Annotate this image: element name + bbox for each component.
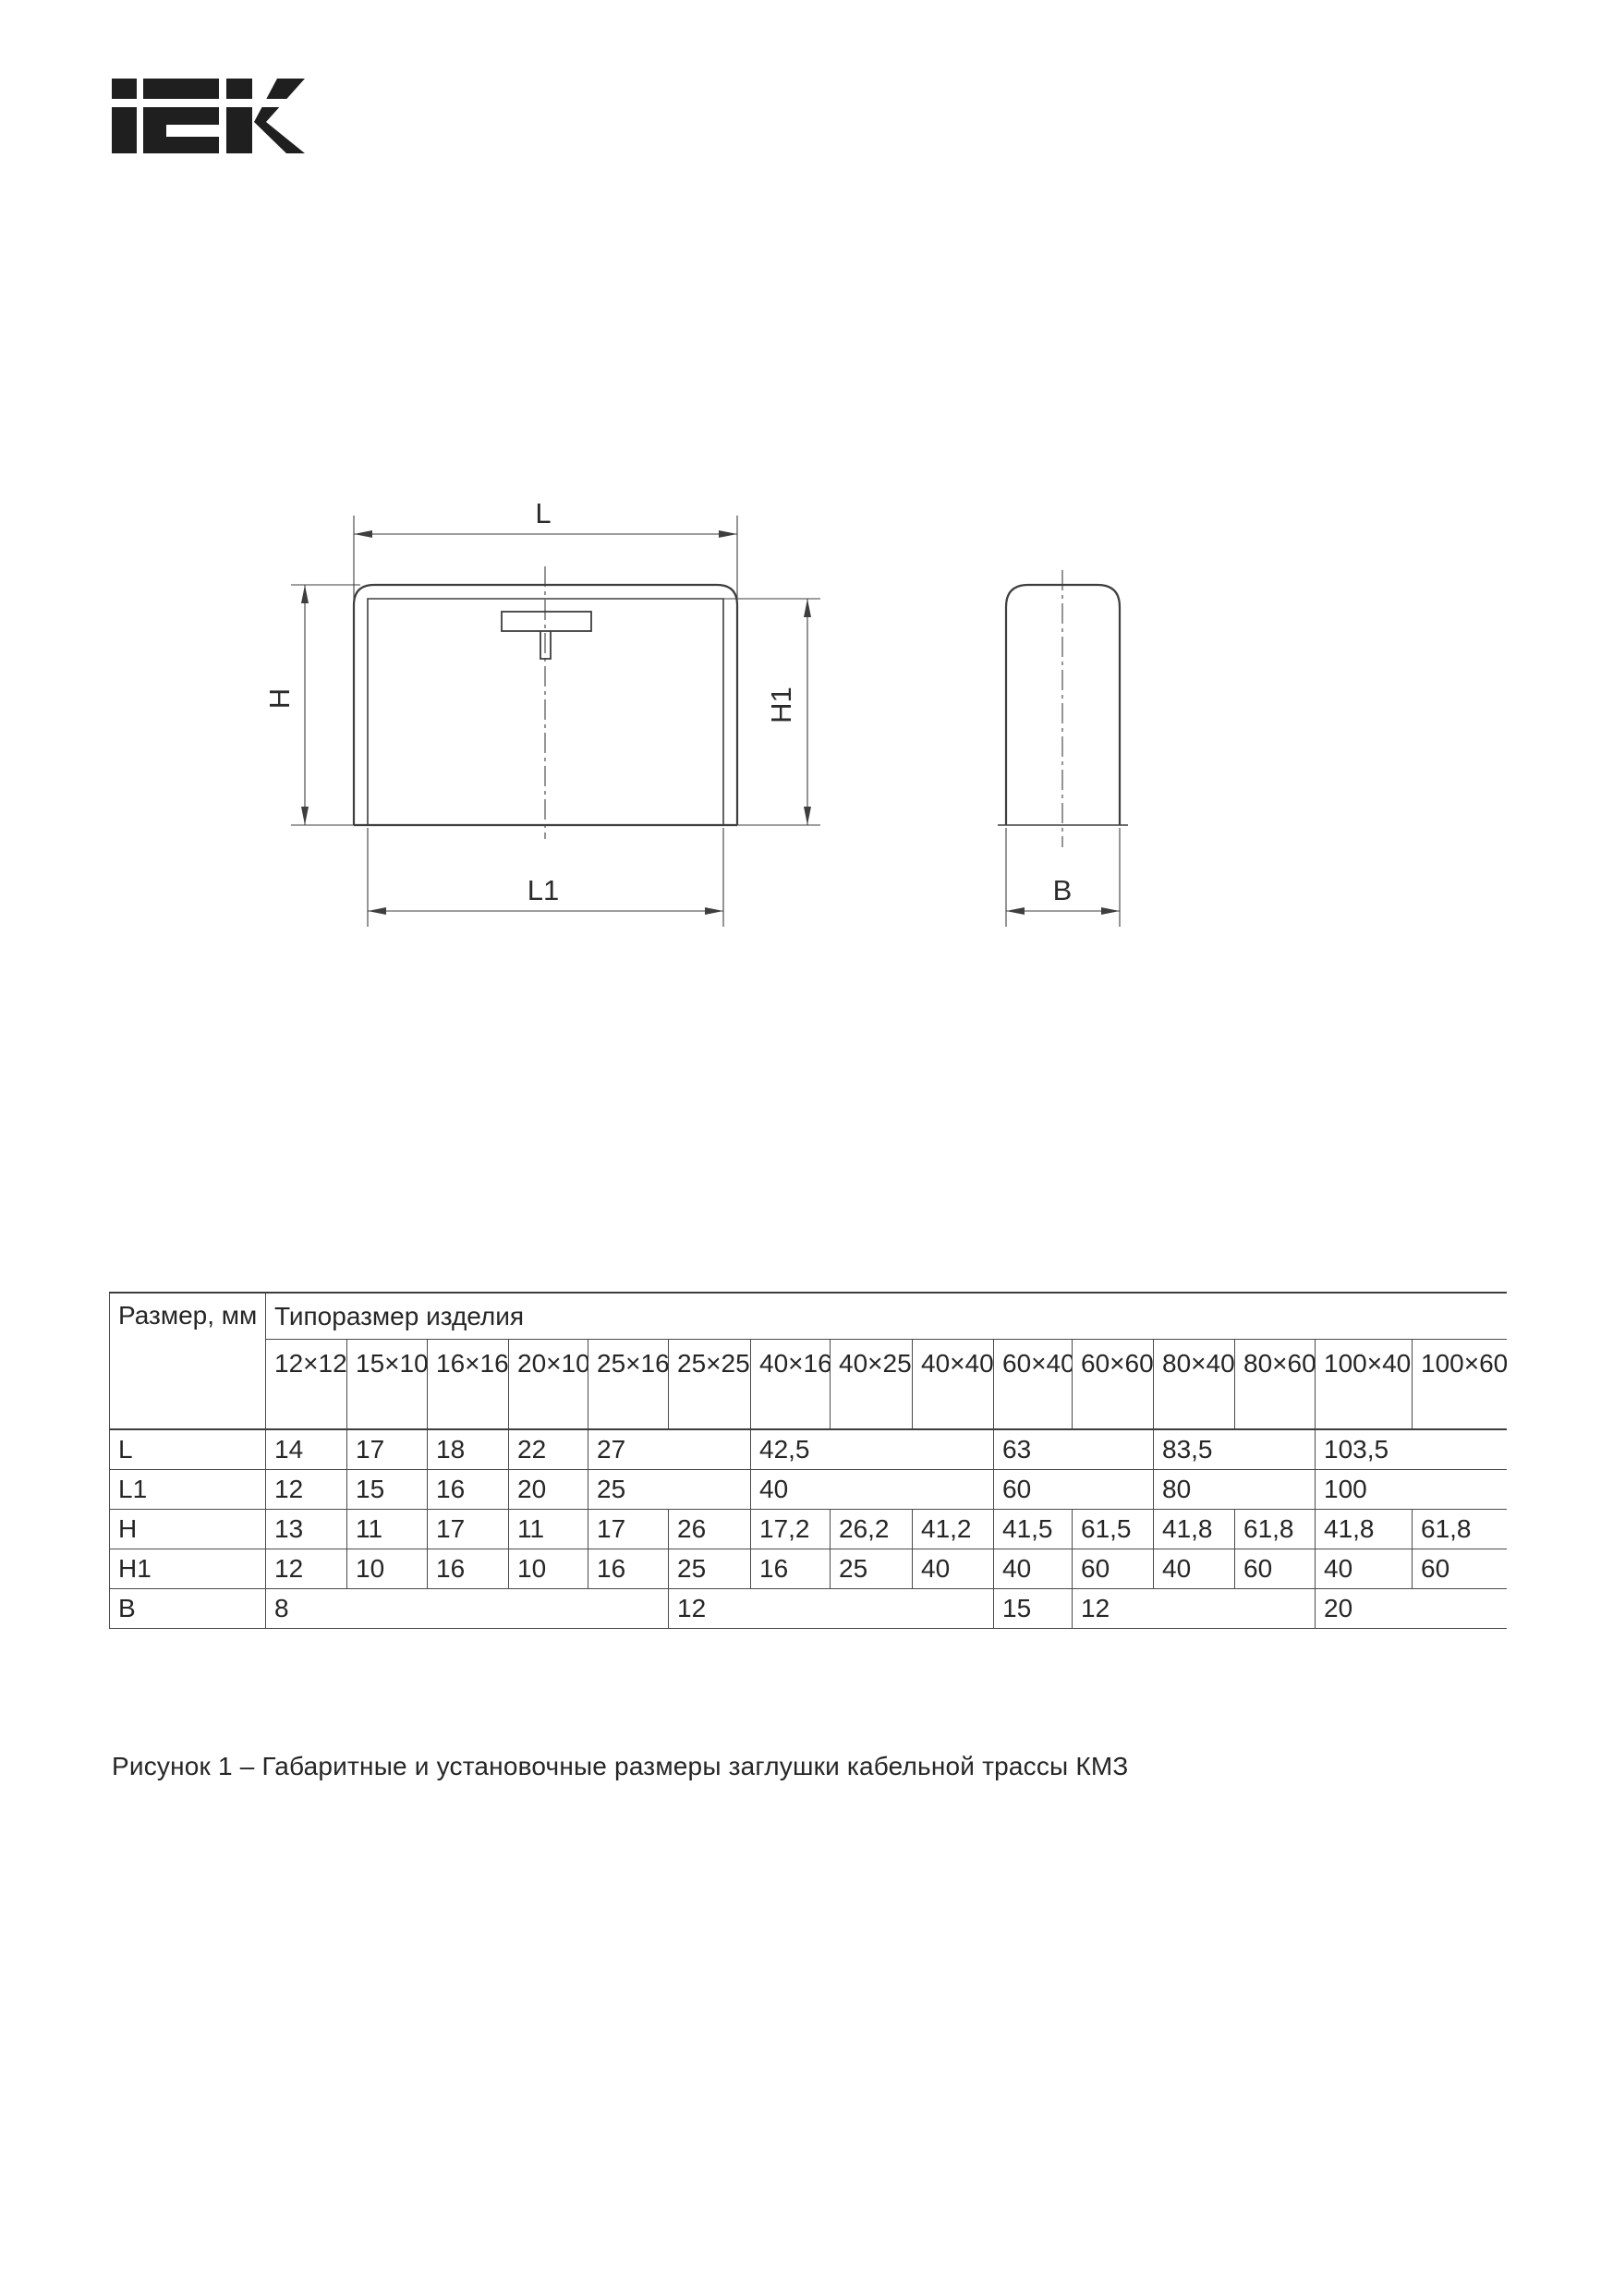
row-label-cell: L (110, 1429, 266, 1470)
size-header-cell: 20×10 (509, 1340, 588, 1430)
size-header-cell: 25×16 (588, 1340, 669, 1430)
dim-label-h1: H1 (765, 686, 797, 723)
corner-header-cell: Размер, мм (110, 1293, 266, 1429)
group-header-cell: Типоразмер изделия (266, 1293, 1507, 1340)
value-cell: 27 (588, 1429, 751, 1470)
value-cell: 25 (588, 1470, 751, 1510)
arrow-h-top (301, 585, 309, 603)
value-cell: 25 (669, 1549, 751, 1589)
table-row-b: B812151220 (110, 1589, 1507, 1629)
latch-bar (502, 612, 591, 631)
size-header-cell: 40×40 (913, 1340, 994, 1430)
value-cell: 26,2 (831, 1510, 913, 1549)
arrow-l-left (354, 530, 372, 538)
value-cell: 17 (347, 1429, 428, 1470)
value-cell: 13 (266, 1510, 347, 1549)
value-cell: 12 (1073, 1589, 1316, 1629)
size-header-cell: 12×12 (266, 1340, 347, 1430)
size-header-row: 12×1215×1016×1620×1025×1625×2540×1640×25… (110, 1340, 1507, 1430)
value-cell: 8 (266, 1589, 669, 1629)
dimensions-table-wrap: Размер, ммТипоразмер изделия12×1215×1016… (109, 1292, 1507, 1629)
row-label-cell: B (110, 1589, 266, 1629)
arrow-l1-left (368, 907, 386, 915)
dimension-labels: L L1 H H1 B (263, 497, 1072, 906)
size-header-cell: 25×25 (669, 1340, 751, 1430)
value-cell: 25 (831, 1549, 913, 1589)
value-cell: 60 (1413, 1549, 1507, 1589)
size-header-cell: 80×60 (1235, 1340, 1316, 1430)
value-cell: 26 (669, 1510, 751, 1549)
value-cell: 42,5 (751, 1429, 994, 1470)
value-cell: 16 (428, 1470, 509, 1510)
value-cell: 61,8 (1413, 1510, 1507, 1549)
dim-label-h: H (263, 688, 296, 709)
value-cell: 15 (994, 1589, 1073, 1629)
arrow-b-left (1006, 907, 1025, 915)
value-cell: 18 (428, 1429, 509, 1470)
value-cell: 63 (994, 1429, 1154, 1470)
size-header-cell: 80×40 (1154, 1340, 1235, 1430)
arrow-b-right (1101, 907, 1120, 915)
row-label-cell: H (110, 1510, 266, 1549)
document-page: IEK (0, 0, 1613, 2296)
arrow-h-bottom (301, 807, 309, 825)
dimensions-table: Размер, ммТипоразмер изделия12×1215×1016… (109, 1292, 1507, 1629)
value-cell: 40 (913, 1549, 994, 1589)
value-cell: 16 (428, 1549, 509, 1589)
value-cell: 83,5 (1154, 1429, 1316, 1470)
size-header-cell: 60×60 (1073, 1340, 1154, 1430)
size-header-cell: 60×40 (994, 1340, 1073, 1430)
size-header-cell: 100×60 (1413, 1340, 1507, 1430)
value-cell: 14 (266, 1429, 347, 1470)
arrow-l-right (719, 530, 737, 538)
size-header-cell: 100×40 (1316, 1340, 1413, 1430)
arrow-h1-top (804, 599, 811, 617)
dim-label-l1: L1 (528, 874, 559, 906)
dim-label-l: L (535, 497, 551, 529)
value-cell: 100 (1316, 1470, 1507, 1510)
value-cell: 15 (347, 1470, 428, 1510)
size-header-cell: 15×10 (347, 1340, 428, 1430)
table-header-row: Размер, ммТипоразмер изделия (110, 1293, 1507, 1340)
value-cell: 16 (751, 1549, 831, 1589)
table-row-l: L141718222742,56383,5103,5 (110, 1429, 1507, 1470)
value-cell: 17 (588, 1510, 669, 1549)
value-cell: 41,8 (1316, 1510, 1413, 1549)
value-cell: 22 (509, 1429, 588, 1470)
table-row-l1: L11215162025406080100 (110, 1470, 1507, 1510)
size-header-cell: 40×25 (831, 1340, 913, 1430)
row-label-cell: L1 (110, 1470, 266, 1510)
value-cell: 40 (751, 1470, 994, 1510)
table-row-h1: H1121016101625162540406040604060 (110, 1549, 1507, 1589)
value-cell: 103,5 (1316, 1429, 1507, 1470)
arrow-h1-bottom (804, 807, 811, 825)
value-cell: 10 (347, 1549, 428, 1589)
size-header-cell: 16×16 (428, 1340, 509, 1430)
value-cell: 17,2 (751, 1510, 831, 1549)
value-cell: 20 (1316, 1589, 1507, 1629)
row-label-cell: H1 (110, 1549, 266, 1589)
value-cell: 11 (347, 1510, 428, 1549)
value-cell: 80 (1154, 1470, 1316, 1510)
figure-caption: Рисунок 1 – Габаритные и установочные ра… (112, 1752, 1129, 1781)
value-cell: 41,8 (1154, 1510, 1235, 1549)
value-cell: 41,5 (994, 1510, 1073, 1549)
value-cell: 60 (1073, 1549, 1154, 1589)
value-cell: 40 (1154, 1549, 1235, 1589)
value-cell: 61,5 (1073, 1510, 1154, 1549)
technical-drawing: L L1 H H1 B (0, 0, 1613, 2296)
dimension-arrowheads (301, 530, 1120, 915)
value-cell: 41,2 (913, 1510, 994, 1549)
arrow-l1-right (705, 907, 723, 915)
value-cell: 10 (509, 1549, 588, 1589)
value-cell: 61,8 (1235, 1510, 1316, 1549)
value-cell: 40 (1316, 1549, 1413, 1589)
value-cell: 11 (509, 1510, 588, 1549)
value-cell: 12 (669, 1589, 994, 1629)
front-view (291, 516, 820, 927)
value-cell: 12 (266, 1470, 347, 1510)
value-cell: 20 (509, 1470, 588, 1510)
value-cell: 60 (1235, 1549, 1316, 1589)
size-header-cell: 40×16 (751, 1340, 831, 1430)
value-cell: 60 (994, 1470, 1154, 1510)
table-row-h: H13111711172617,226,241,241,561,541,861,… (110, 1510, 1507, 1549)
dim-label-b: B (1053, 874, 1073, 906)
value-cell: 16 (588, 1549, 669, 1589)
value-cell: 17 (428, 1510, 509, 1549)
value-cell: 12 (266, 1549, 347, 1589)
value-cell: 40 (994, 1549, 1073, 1589)
